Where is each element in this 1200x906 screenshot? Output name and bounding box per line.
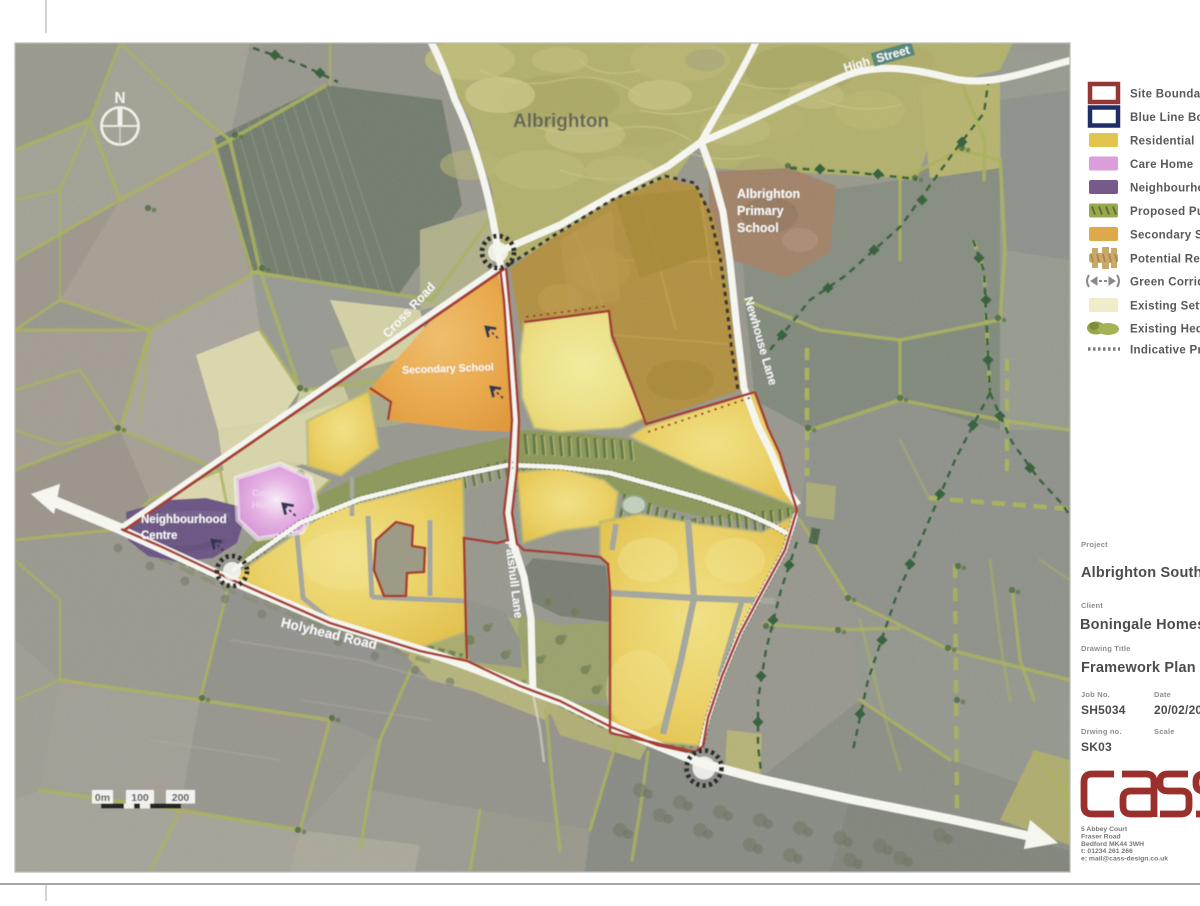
svg-text:Residential: Residential [1130, 136, 1195, 148]
svg-text:Framework Plan: Framework Plan [1081, 660, 1196, 676]
svg-text:Bedford MK44 3WH: Bedford MK44 3WH [1081, 841, 1144, 848]
svg-text:Blue Line Bo: Blue Line Bo [1130, 112, 1200, 124]
svg-text:Project: Project [1081, 540, 1108, 549]
svg-text:SH5034: SH5034 [1081, 703, 1126, 717]
svg-text:Drwing no.: Drwing no. [1081, 727, 1122, 736]
svg-text:Proposed Pu: Proposed Pu [1130, 206, 1200, 218]
svg-text:Existing Sett: Existing Sett [1130, 301, 1200, 313]
svg-text:Scale: Scale [1154, 727, 1175, 736]
svg-text:Secondary S: Secondary S [1130, 230, 1200, 242]
svg-text:Neighbourho: Neighbourho [1130, 183, 1200, 195]
svg-text:Site Bounda: Site Bounda [1130, 89, 1200, 101]
svg-text:20/02/20: 20/02/20 [1154, 703, 1200, 717]
svg-text:Existing Hed: Existing Hed [1130, 324, 1200, 336]
svg-text:Drawing Title: Drawing Title [1081, 644, 1131, 653]
svg-text:Boningale Homes: Boningale Homes [1080, 617, 1200, 633]
svg-text:Fraser Road: Fraser Road [1081, 833, 1121, 840]
svg-text:Job No.: Job No. [1081, 690, 1110, 699]
svg-text:Potential Re: Potential Re [1130, 254, 1200, 266]
svg-text:t: 01234 261 266: t: 01234 261 266 [1081, 848, 1133, 855]
svg-text:Green Corrid: Green Corrid [1130, 277, 1200, 289]
svg-text:e: mail@cass-design.co.uk: e: mail@cass-design.co.uk [1081, 856, 1168, 863]
svg-text:Indicative Pr: Indicative Pr [1130, 345, 1200, 357]
svg-text:Date: Date [1154, 690, 1171, 699]
svg-text:Client: Client [1081, 601, 1103, 610]
svg-text:5 Abbey Court: 5 Abbey Court [1081, 826, 1128, 833]
svg-text:SK03: SK03 [1081, 740, 1112, 754]
svg-text:Care Home: Care Home [1130, 159, 1193, 171]
svg-text:Albrighton South: Albrighton South [1081, 565, 1200, 581]
